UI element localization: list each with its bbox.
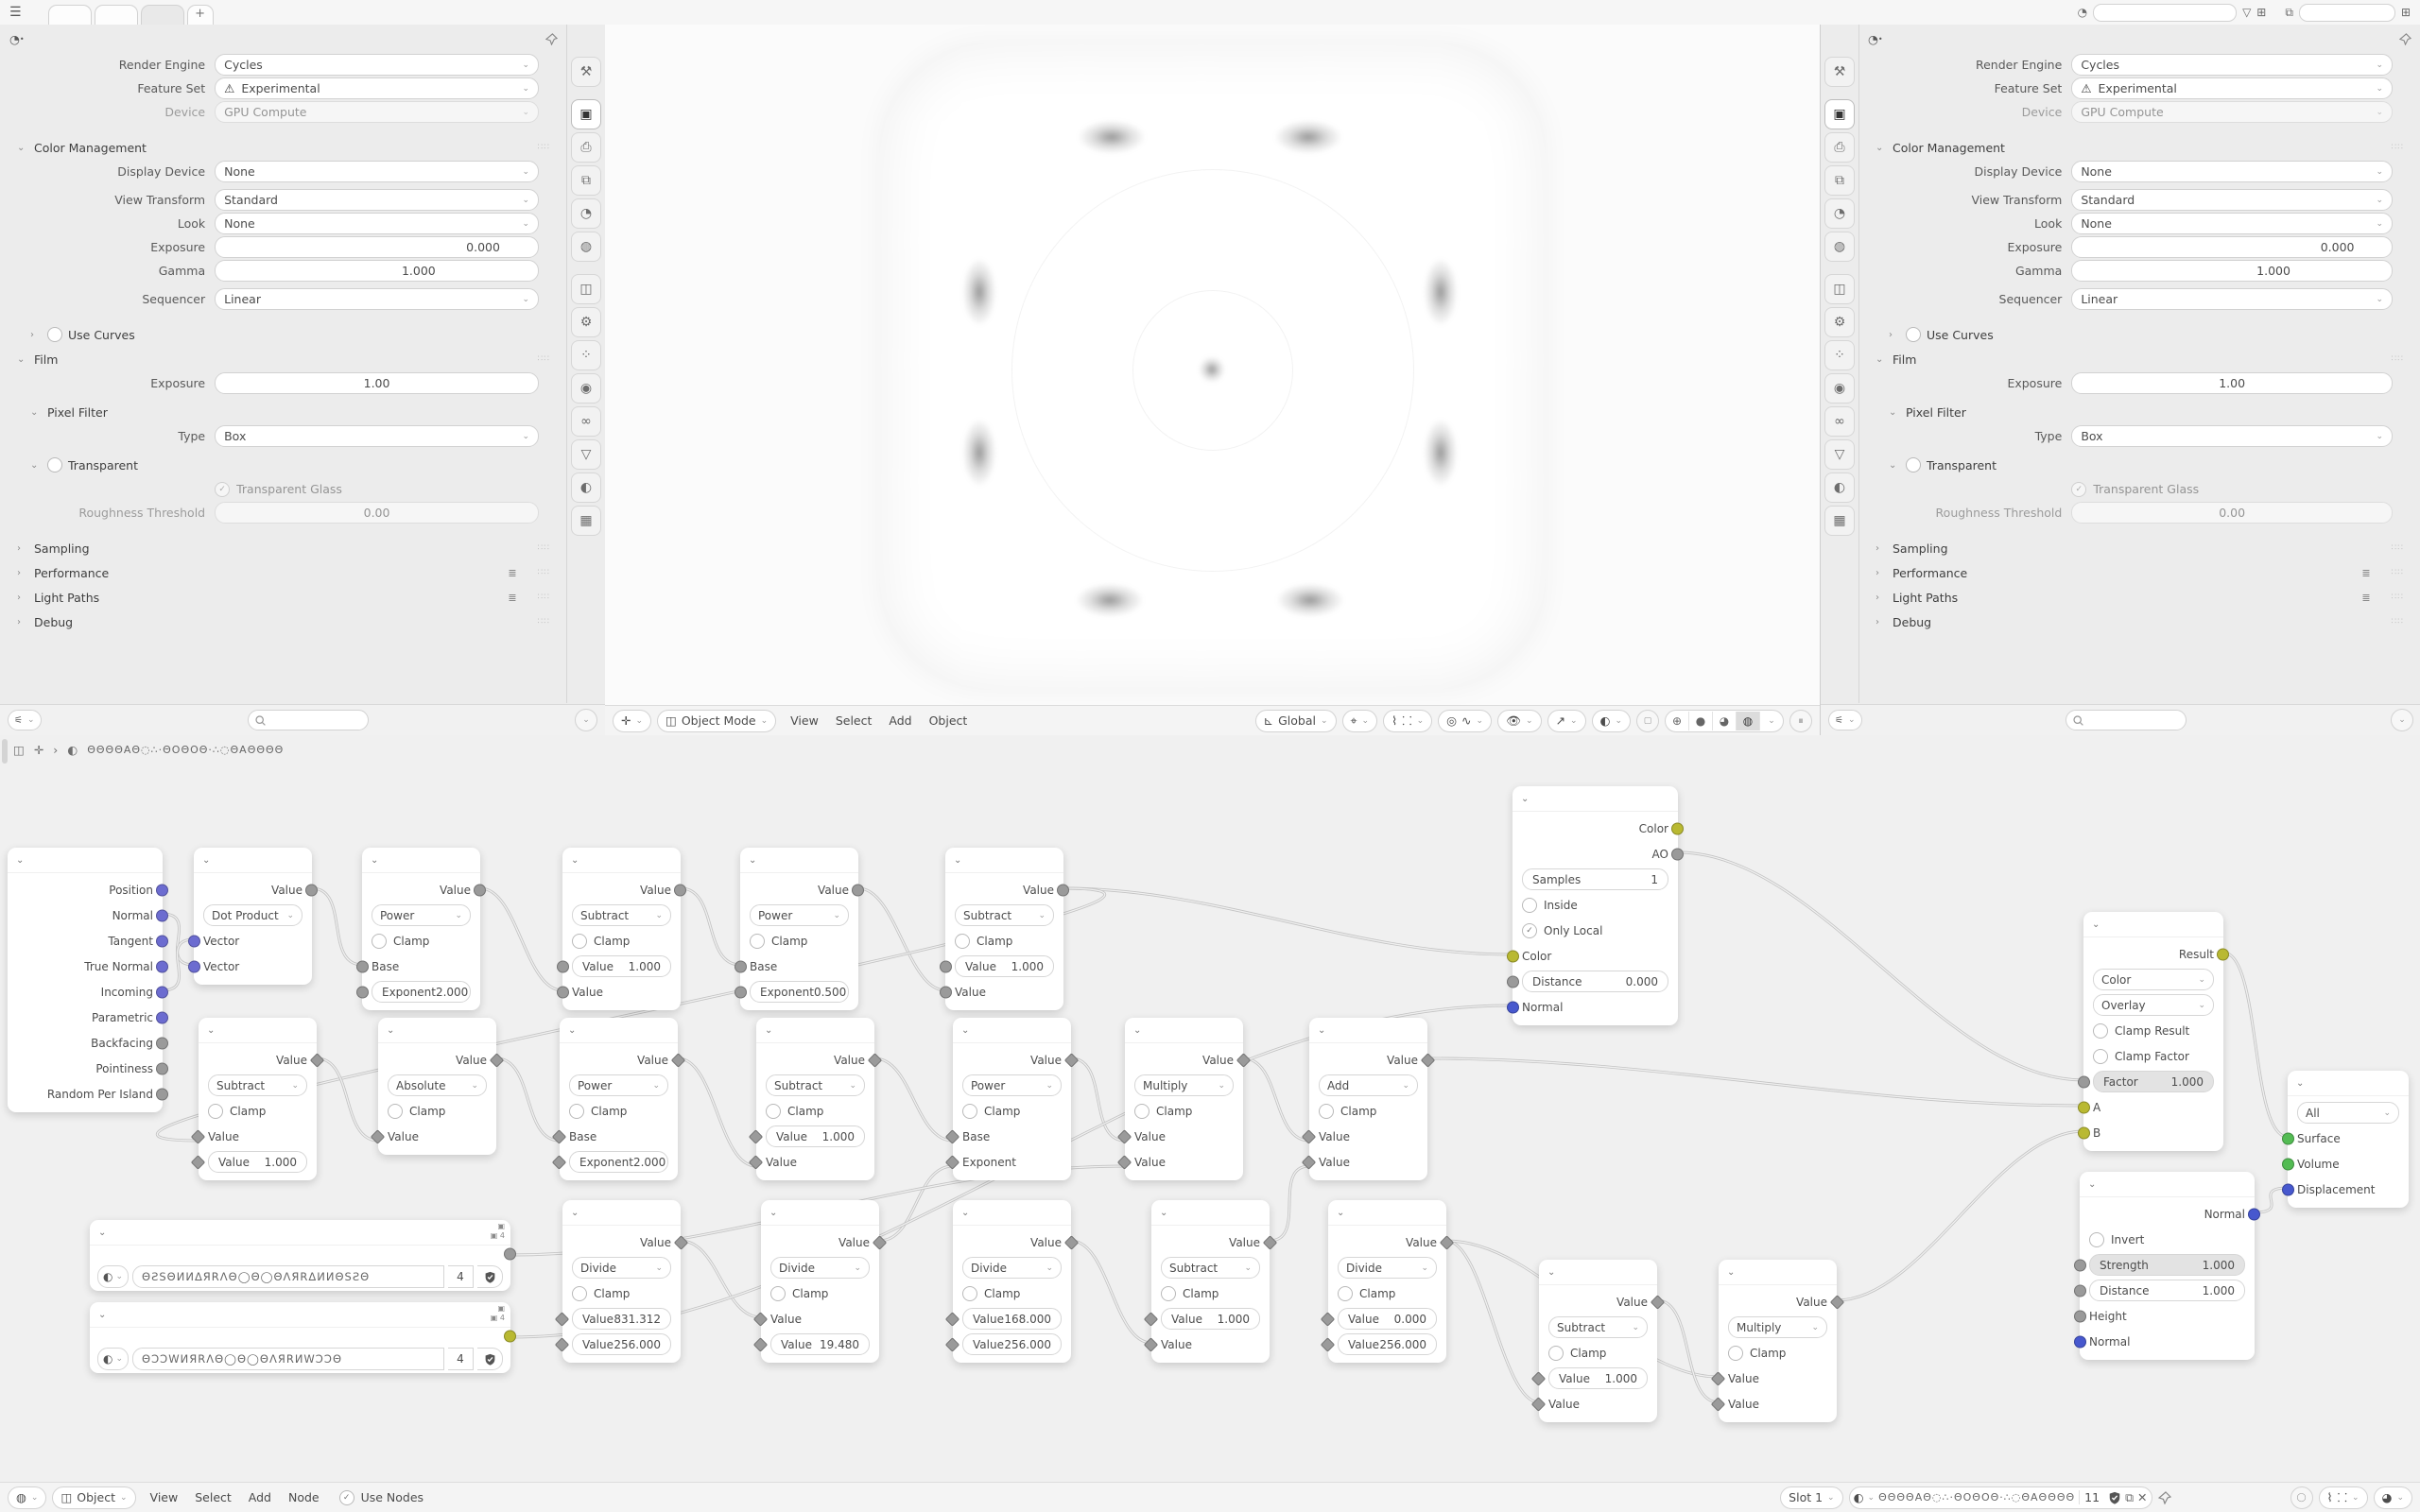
props-section-light-paths[interactable]: ›Light Paths≣∷∷ [1862, 585, 2417, 610]
collapse-arrow[interactable]: › [17, 593, 28, 603]
exposure-slider[interactable]: 0.000 [215, 236, 539, 258]
node-subtract-r3[interactable]: ⌄ValueSubtract⌄ClampValue1.000Value [1151, 1200, 1270, 1363]
node-collapse-chevron[interactable]: ⌄ [961, 1208, 969, 1218]
value-field-value[interactable]: Value1.000 [1161, 1308, 1260, 1330]
value-field-distance[interactable]: Distance1.000 [2089, 1280, 2245, 1301]
feature-set-dropdown[interactable]: ⚠Experimental⌄ [2071, 77, 2393, 99]
operation-dropdown[interactable]: Overlay⌄ [2093, 994, 2214, 1016]
node-collapse-chevron[interactable]: ⌄ [2092, 919, 2100, 930]
expand-arrow[interactable]: ⌄ [1889, 407, 1900, 418]
new-scene-icon[interactable]: ⊞ [2256, 6, 2266, 19]
node-collapse-chevron[interactable]: ⌄ [568, 1025, 576, 1036]
socket-yellow[interactable] [504, 1331, 516, 1343]
tool-tab[interactable]: ⚒ [571, 57, 601, 87]
use-nodes-checkbox[interactable]: ✓ Use Nodes [339, 1490, 423, 1505]
expand-arrow[interactable]: ⌄ [1875, 143, 1887, 153]
section-checkbox[interactable] [1906, 327, 1921, 342]
props-section-light-paths[interactable]: ›Light Paths≣∷∷ [4, 585, 563, 610]
snap-group[interactable]: ⌇⸬⌄ [1383, 710, 1432, 732]
value-field-exponent[interactable]: Exponent2.000 [372, 981, 471, 1003]
plus-icon[interactable]: ✛ [34, 743, 43, 757]
collapse-arrow[interactable]: › [1875, 543, 1887, 554]
expand-arrow[interactable]: ⌄ [1875, 354, 1887, 365]
node-collapse-chevron[interactable]: ⌄ [16, 855, 24, 866]
menu-select[interactable]: Select [827, 713, 881, 728]
display-filter-button[interactable]: ⚟⌄ [8, 710, 42, 730]
operation-dropdown[interactable]: Power⌄ [962, 1074, 1062, 1096]
expand-arrow[interactable]: ⌄ [1889, 460, 1900, 471]
node-header[interactable]: ⌄▣▣ 4 [90, 1220, 510, 1246]
props-section-performance[interactable]: ›Performance≣∷∷ [1862, 560, 2417, 585]
fake-user-shield-icon[interactable] [477, 1265, 503, 1288]
editor-type-button[interactable]: ◍⌄ [8, 1486, 46, 1509]
workspace-tab[interactable] [95, 5, 138, 25]
object-tab[interactable]: ◫ [1824, 274, 1855, 304]
drag-dots-icon[interactable]: ∷∷ [538, 543, 550, 553]
socket-gray[interactable] [940, 986, 952, 998]
socket-gray[interactable] [674, 884, 686, 896]
checkbox-clamp[interactable]: Clamp [955, 934, 1012, 949]
workspace-tab[interactable] [48, 5, 92, 25]
collapse-button[interactable]: ⌄ [575, 709, 597, 731]
props-section-film[interactable]: ⌄Film∷∷ [1862, 347, 2417, 371]
operation-dropdown[interactable]: Power⌄ [569, 1074, 668, 1096]
editor-type-button[interactable]: ✛⌄ [613, 710, 651, 732]
node-collapse-chevron[interactable]: ⌄ [571, 855, 579, 866]
node-collapse-chevron[interactable]: ⌄ [202, 855, 210, 866]
orientation-dropdown[interactable]: ⊾Global⌄ [1255, 710, 1337, 732]
section-checkbox[interactable] [1906, 457, 1921, 472]
display-device-dropdown[interactable]: None⌄ [215, 161, 539, 182]
socket-gray[interactable] [557, 960, 569, 972]
node-menu-select[interactable]: Select [186, 1490, 240, 1504]
output-tab[interactable]: ⎙ [1824, 132, 1855, 163]
socket-gray[interactable] [1057, 884, 1069, 896]
node-collapse-chevron[interactable]: ⌄ [387, 1025, 394, 1036]
transparent-glass-checkbox[interactable]: ✓Transparent Glass [215, 482, 539, 497]
menu-object[interactable]: Object [921, 713, 977, 728]
node-header[interactable]: ⌄ [2083, 912, 2223, 937]
look-dropdown[interactable]: None⌄ [2071, 213, 2393, 234]
collapse-arrow[interactable]: › [1875, 568, 1887, 578]
node-collapse-chevron[interactable]: ⌄ [207, 1025, 215, 1036]
particles-tab[interactable]: ⁘ [1824, 340, 1855, 370]
render-engine-dropdown[interactable]: Cycles⌄ [2071, 54, 2393, 76]
drag-dots-icon[interactable]: ∷∷ [2392, 568, 2404, 577]
operation-dropdown[interactable]: Multiply⌄ [1728, 1316, 1827, 1338]
image-name-field[interactable]: ΘƆƆWИЯRΛΘ◯Θ◯ΘΛЯRИWƆƆΘ [132, 1348, 444, 1370]
node-divide-1[interactable]: ⌄ValueDivide⌄ClampValue831.312Value256.0… [562, 1200, 681, 1363]
collapse-button[interactable]: ⌄ [2391, 709, 2413, 731]
section-checkbox[interactable] [47, 327, 62, 342]
socket-gray[interactable] [735, 986, 747, 998]
collapse-arrow[interactable]: › [1875, 617, 1887, 627]
copy-material-icon[interactable]: ⧉ [2125, 1490, 2134, 1505]
socket-gray[interactable] [557, 986, 569, 998]
node-subtract-r2b[interactable]: ⌄ValueSubtract⌄ClampValue1.000Value [756, 1018, 874, 1180]
node-geometry[interactable]: ⌄PositionNormalTangentTrue NormalIncomin… [8, 848, 163, 1112]
props-section-use-curves[interactable]: ›Use Curves [4, 322, 563, 347]
checkbox-clamp[interactable]: Clamp [750, 934, 807, 949]
physics-tab[interactable]: ◉ [571, 373, 601, 404]
collapse-arrow[interactable]: › [1875, 593, 1887, 603]
operation-dropdown[interactable]: Divide⌄ [1338, 1257, 1437, 1279]
overlays-dropdown[interactable]: ◐⌄ [1592, 710, 1631, 732]
socket-blue[interactable] [2248, 1208, 2260, 1220]
value-field-value[interactable]: Value168.000 [962, 1308, 1062, 1330]
sequencer-dropdown[interactable]: Linear⌄ [215, 288, 539, 310]
operation-dropdown[interactable]: Subtract⌄ [1548, 1316, 1648, 1338]
drag-dots-icon[interactable]: ∷∷ [538, 143, 550, 152]
value-field-exponent[interactable]: Exponent0.500 [750, 981, 849, 1003]
render-tab[interactable]: ▣ [571, 99, 601, 129]
drag-dots-icon[interactable]: ∷∷ [2392, 543, 2404, 553]
socket-gray[interactable] [852, 884, 864, 896]
node-header[interactable]: ⌄ [953, 1018, 1071, 1043]
node-header[interactable]: ⌄ [1328, 1200, 1446, 1226]
gamma-slider[interactable]: 1.000 [215, 260, 539, 282]
node-header[interactable]: ⌄ [2288, 1071, 2409, 1096]
node-header[interactable]: ⌄ [378, 1018, 496, 1043]
material-selector[interactable]: ◐⌄ ΘΘΘΘAΘ◌∴·ΘΟΘΟΘ·∴◌ΘAΘΘΘΘ 11 ⧉ ✕ [1849, 1486, 2152, 1509]
object-tab[interactable]: ◫ [571, 274, 601, 304]
device-dropdown[interactable]: GPU Compute⌄ [2071, 101, 2393, 123]
node-header[interactable]: ⌄ [2080, 1172, 2255, 1197]
checkbox-clamp[interactable]: Clamp [569, 1104, 627, 1119]
add-workspace-tab[interactable]: + [187, 5, 214, 25]
node-menu-add[interactable]: Add [240, 1490, 280, 1504]
socket-gray[interactable] [2074, 1259, 2086, 1271]
physics-tab[interactable]: ◉ [1824, 373, 1855, 404]
node-collapse-chevron[interactable]: ⌄ [1337, 1208, 1344, 1218]
render-tab[interactable]: ▣ [1824, 99, 1855, 129]
new-view-layer-icon[interactable]: ⊞ [2401, 6, 2411, 19]
node-collapse-chevron[interactable]: ⌄ [961, 1025, 969, 1036]
node-collapse-chevron[interactable]: ⌄ [1547, 1267, 1555, 1278]
socket-gray[interactable] [156, 1062, 168, 1074]
socket-gray[interactable] [474, 884, 486, 896]
node-collapse-chevron[interactable]: ⌄ [2296, 1078, 2304, 1089]
socket-purple[interactable] [156, 1011, 168, 1023]
operation-dropdown[interactable]: Divide⌄ [962, 1257, 1062, 1279]
checkbox-only-local[interactable]: ✓Only Local [1522, 923, 1602, 938]
socket-gray[interactable] [305, 884, 318, 896]
node-collapse-chevron[interactable]: ⌄ [2088, 1179, 2096, 1190]
socket-gray[interactable] [2078, 1075, 2090, 1088]
checkbox-clamp[interactable]: Clamp [770, 1286, 828, 1301]
value-field-value[interactable]: Value1.000 [955, 955, 1054, 977]
properties-search-input[interactable] [2066, 710, 2187, 730]
collapse-arrow[interactable]: › [30, 330, 42, 340]
exposure-field[interactable]: 1.00 [2071, 372, 2393, 394]
drag-dots-icon[interactable]: ∷∷ [2392, 617, 2404, 627]
socket-gray[interactable] [356, 960, 369, 972]
socket-green[interactable] [2282, 1158, 2294, 1170]
drag-dots-icon[interactable]: ∷∷ [2392, 143, 2404, 152]
drag-dots-icon[interactable]: ∷∷ [538, 593, 550, 602]
checkbox-clamp[interactable]: Clamp [1319, 1104, 1376, 1119]
feature-set-dropdown[interactable]: ⚠Experimental⌄ [215, 77, 539, 99]
node-header[interactable]: ⌄ [199, 1018, 317, 1043]
visibility-dropdown[interactable]: 👁⌄ [1497, 710, 1541, 732]
checkbox-invert[interactable]: Invert [2089, 1232, 2144, 1247]
props-section-pixel-filter[interactable]: ⌄Pixel Filter [1862, 400, 2417, 424]
node-menu-node[interactable]: Node [280, 1490, 328, 1504]
socket-purple[interactable] [156, 960, 168, 972]
modifiers-tab[interactable]: ⚙ [1824, 307, 1855, 337]
props-section-performance[interactable]: ›Performance≣∷∷ [4, 560, 563, 585]
value-field-value[interactable]: Value256.000 [572, 1333, 671, 1355]
operation-dropdown[interactable]: Add⌄ [1319, 1074, 1418, 1096]
value-field-value[interactable]: Value1.000 [766, 1125, 865, 1147]
operation-dropdown[interactable]: Power⌄ [372, 904, 471, 926]
node-menu-view[interactable]: View [142, 1490, 187, 1504]
transparent-glass-checkbox[interactable]: ✓Transparent Glass [2071, 482, 2393, 497]
image-user-count[interactable]: 4 [448, 1265, 474, 1288]
gizmos-dropdown[interactable]: ↗⌄ [1547, 710, 1586, 732]
viewport-3d[interactable]: ✛⌄ ◫Object Mode⌄ ViewSelectAddObject ⊾Gl… [605, 25, 1820, 735]
pivot-dropdown[interactable]: ⌖⌄ [1342, 710, 1378, 732]
data-tab[interactable]: ▽ [1824, 439, 1855, 470]
pause-render-button[interactable]: ⏸ [1789, 710, 1812, 732]
node-header[interactable]: ⌄ [1539, 1260, 1657, 1285]
checkbox-clamp[interactable]: Clamp [208, 1104, 266, 1119]
value-field-value[interactable]: Value1.000 [572, 955, 671, 977]
node-dot-product[interactable]: ⌄ValueDot Product⌄VectorVector [194, 848, 312, 985]
socket-blue[interactable] [2074, 1335, 2086, 1348]
value-field-distance[interactable]: Distance0.000 [1522, 971, 1668, 992]
view-transform-dropdown[interactable]: Standard⌄ [215, 189, 539, 211]
node-header[interactable]: ⌄ [1151, 1200, 1270, 1226]
shader-node-editor[interactable]: ◫ ✛ › ◐ ΘΘΘΘAΘ◌∴·ΘΟΘΟΘ·∴◌ΘAΘΘΘΘ ⌄Positio… [0, 735, 2420, 1482]
socket-gray[interactable] [156, 1088, 168, 1100]
value-field-value[interactable]: Value0.000 [1338, 1308, 1437, 1330]
gamma-slider[interactable]: 1.000 [2071, 260, 2393, 282]
node-subtract-low[interactable]: ⌄ValueSubtract⌄ClampValue1.000Value [1539, 1260, 1657, 1422]
checkbox-clamp-factor[interactable]: Clamp Factor [2093, 1049, 2189, 1064]
material-tab[interactable]: ◐ [1824, 472, 1855, 503]
props-section-sampling[interactable]: ›Sampling∷∷ [1862, 536, 2417, 560]
data-tab[interactable]: ▽ [571, 439, 601, 470]
node-image-2[interactable]: ⌄▣▣ 4◐⌄ΘƆƆWИЯRΛΘ◯Θ◯ΘΛЯRИWƆƆΘ4 [90, 1302, 510, 1373]
node-header[interactable]: ⌄ [562, 848, 681, 873]
socket-gray[interactable] [1671, 848, 1684, 860]
value-field-samples[interactable]: Samples1 [1522, 868, 1668, 890]
expand-arrow[interactable]: ⌄ [30, 407, 42, 418]
drag-dots-icon[interactable]: ∷∷ [538, 617, 550, 627]
checkbox-clamp[interactable]: Clamp [388, 1104, 445, 1119]
device-dropdown[interactable]: GPU Compute⌄ [215, 101, 539, 123]
operation-dropdown[interactable]: Divide⌄ [770, 1257, 870, 1279]
view-layer-tab[interactable]: ⧉ [1824, 165, 1855, 196]
operation-dropdown[interactable]: Absolute⌄ [388, 1074, 487, 1096]
node-header[interactable]: ⌄ [562, 1200, 681, 1226]
particles-tab[interactable]: ⁘ [571, 340, 601, 370]
node-collapse-chevron[interactable]: ⌄ [749, 855, 756, 866]
socket-yellow[interactable] [1507, 950, 1519, 962]
node-divide-4[interactable]: ⌄ValueDivide⌄ClampValue0.000Value256.000 [1328, 1200, 1446, 1363]
value-field-value[interactable]: Value256.000 [962, 1333, 1062, 1355]
node-ambient-occlusion[interactable]: ⌄ColorAOSamples1Inside✓Only LocalColorDi… [1512, 786, 1678, 1025]
node-multiply-r2[interactable]: ⌄ValueMultiply⌄ClampValueValue [1125, 1018, 1243, 1180]
checkbox-clamp[interactable]: Clamp [1338, 1286, 1395, 1301]
value-field-strength[interactable]: Strength1.000 [2089, 1254, 2245, 1276]
socket-gray[interactable] [2074, 1284, 2086, 1297]
scene-selector[interactable] [2093, 4, 2237, 22]
props-section-transparent[interactable]: ⌄Transparent [4, 453, 563, 477]
node-collapse-chevron[interactable]: ⌄ [1160, 1208, 1167, 1218]
checkbox-clamp[interactable]: Clamp [1161, 1286, 1219, 1301]
node-material-output[interactable]: ⌄All⌄SurfaceVolumeDisplacement [2288, 1071, 2409, 1208]
node-power-r2c[interactable]: ⌄ValuePower⌄ClampBaseExponent [953, 1018, 1071, 1180]
drag-dots-icon[interactable]: ∷∷ [538, 354, 550, 364]
tool-tab[interactable]: ⚒ [1824, 57, 1855, 87]
socket-green[interactable] [2282, 1132, 2294, 1144]
node-header[interactable]: ⌄ [1309, 1018, 1427, 1043]
node-collapse-chevron[interactable]: ⌄ [1318, 1025, 1325, 1036]
operation-dropdown[interactable]: Dot Product⌄ [203, 904, 302, 926]
world-tab[interactable]: ◍ [1824, 232, 1855, 262]
world-tab[interactable]: ◍ [571, 232, 601, 262]
scene-tab[interactable]: ◔ [1824, 198, 1855, 229]
node-header[interactable]: ⌄ [756, 1018, 874, 1043]
value-field-factor[interactable]: Factor1.000 [2093, 1071, 2214, 1092]
checkbox-clamp[interactable]: Clamp [962, 1286, 1020, 1301]
node-collapse-chevron[interactable]: ⌄ [371, 855, 378, 866]
socket-purple[interactable] [156, 884, 168, 896]
node-header[interactable]: ⌄ [8, 848, 163, 873]
node-header[interactable]: ⌄ [194, 848, 312, 873]
node-header[interactable]: ⌄▣▣ 4 [90, 1302, 510, 1328]
pin-icon[interactable] [2399, 28, 2411, 49]
checkbox-clamp[interactable]: Clamp [962, 1104, 1020, 1119]
checkbox-clamp[interactable]: Clamp [1134, 1104, 1192, 1119]
node-multiply-low[interactable]: ⌄ValueMultiply⌄ClampValueValue [1719, 1260, 1837, 1422]
checkbox-clamp[interactable]: Clamp [572, 934, 630, 949]
drag-dots-icon[interactable]: ∷∷ [538, 568, 550, 577]
checkbox-clamp-result[interactable]: Clamp Result [2093, 1023, 2189, 1039]
mode-dropdown[interactable]: ◫Object Mode⌄ [657, 710, 776, 732]
props-section-film[interactable]: ⌄Film∷∷ [4, 347, 563, 371]
material-shading-button[interactable]: ◕ [1713, 712, 1737, 730]
xray-toggle[interactable]: ▢ [1636, 710, 1659, 732]
node-collapse-chevron[interactable]: ⌄ [1521, 794, 1529, 804]
collapse-arrow[interactable]: › [17, 543, 28, 554]
node-collapse-chevron[interactable]: ⌄ [769, 1208, 777, 1218]
socket-blue[interactable] [2282, 1183, 2294, 1195]
node-collapse-chevron[interactable]: ⌄ [98, 1310, 106, 1320]
constraints-tab[interactable]: ∞ [1824, 406, 1855, 437]
socket-blue[interactable] [1507, 1001, 1519, 1013]
node-header[interactable]: ⌄ [1125, 1018, 1243, 1043]
roughness-threshold-field[interactable]: 0.00 [215, 502, 539, 524]
texture-tab[interactable]: ▦ [1824, 506, 1855, 536]
value-field-value[interactable]: Value1.000 [208, 1151, 307, 1173]
operation-dropdown[interactable]: Subtract⌄ [572, 904, 671, 926]
checkbox-clamp[interactable]: Clamp [372, 934, 429, 949]
collapse-arrow[interactable]: › [17, 617, 28, 627]
snap-settings[interactable]: ⌇⸬⌄ [2319, 1486, 2368, 1509]
node-header[interactable]: ⌄ [945, 848, 1063, 873]
presets-icon[interactable]: ≣ [2361, 567, 2370, 579]
texture-tab[interactable]: ▦ [571, 506, 601, 536]
node-subtract-2[interactable]: ⌄ValueSubtract⌄ClampValue1.000Value [945, 848, 1063, 1010]
drag-dots-icon[interactable]: ∷∷ [2392, 593, 2404, 602]
socket-yellow[interactable] [2078, 1126, 2090, 1139]
node-add-r2[interactable]: ⌄ValueAdd⌄ClampValueValue [1309, 1018, 1427, 1180]
node-bump[interactable]: ⌄NormalInvertStrength1.000Distance1.000H… [2080, 1172, 2255, 1360]
user-count[interactable]: 11 [2079, 1490, 2104, 1504]
socket-yellow[interactable] [2217, 948, 2229, 960]
checkbox-clamp[interactable]: Clamp [572, 1286, 630, 1301]
checkbox-clamp[interactable]: Clamp [1728, 1346, 1786, 1361]
operation-dropdown[interactable]: Subtract⌄ [955, 904, 1054, 926]
drag-dots-icon[interactable]: ∷∷ [2392, 354, 2404, 364]
socket-purple[interactable] [188, 960, 200, 972]
section-checkbox[interactable] [47, 457, 62, 472]
node-collapse-chevron[interactable]: ⌄ [954, 855, 961, 866]
wireframe-shading-button[interactable]: ⊕ [1666, 712, 1689, 730]
operation-dropdown[interactable]: Subtract⌄ [1161, 1257, 1260, 1279]
node-collapse-chevron[interactable]: ⌄ [98, 1228, 106, 1238]
operation-dropdown[interactable]: Power⌄ [750, 904, 849, 926]
value-field-exponent[interactable]: Exponent2.000 [569, 1151, 668, 1173]
operation-dropdown[interactable]: Multiply⌄ [1134, 1074, 1234, 1096]
menu-add[interactable]: Add [880, 713, 920, 728]
filter-icon[interactable]: ▽ [2242, 6, 2251, 19]
modifiers-tab[interactable]: ⚙ [571, 307, 601, 337]
view-layer-tab[interactable]: ⧉ [571, 165, 601, 196]
app-menu-icon[interactable]: ☰ [9, 5, 22, 20]
node-power-1[interactable]: ⌄ValuePower⌄ClampBaseExponent2.000 [362, 848, 480, 1010]
node-header[interactable]: ⌄ [761, 1200, 879, 1226]
rendered-shading-button[interactable]: ◍ [1737, 712, 1760, 730]
props-section-pixel-filter[interactable]: ⌄Pixel Filter [4, 400, 563, 424]
checkbox-clamp[interactable]: Clamp [766, 1104, 823, 1119]
socket-yellow[interactable] [1671, 822, 1684, 834]
sequencer-dropdown[interactable]: Linear⌄ [2071, 288, 2393, 310]
collapse-arrow[interactable]: › [17, 568, 28, 578]
node-absolute[interactable]: ⌄ValueAbsolute⌄ClampValue [378, 1018, 496, 1155]
operation-dropdown[interactable]: All⌄ [2297, 1102, 2399, 1124]
node-power-r2[interactable]: ⌄ValuePower⌄ClampBaseExponent2.000 [560, 1018, 678, 1180]
image-browse-dropdown[interactable]: ◐⌄ [97, 1348, 129, 1370]
presets-icon[interactable]: ≣ [508, 592, 516, 604]
pin-icon[interactable] [545, 28, 558, 49]
operation-dropdown[interactable]: Subtract⌄ [766, 1074, 865, 1096]
presets-icon[interactable]: ≣ [2361, 592, 2370, 604]
expand-arrow[interactable]: ⌄ [17, 143, 28, 153]
view-layer-selector[interactable] [2299, 4, 2395, 22]
socket-purple[interactable] [156, 986, 168, 998]
type-dropdown[interactable]: Box⌄ [2071, 425, 2393, 447]
display-filter-button[interactable]: ⚟⌄ [1828, 710, 1862, 730]
checkbox-inside[interactable]: Inside [1522, 898, 1578, 913]
exposure-field[interactable]: 1.00 [215, 372, 539, 394]
socket-gray[interactable] [504, 1248, 516, 1261]
node-divide-3[interactable]: ⌄ValueDivide⌄ClampValue168.000Value256.0… [953, 1200, 1071, 1363]
socket-gray[interactable] [2074, 1310, 2086, 1322]
operation-dropdown[interactable]: Color⌄ [2093, 969, 2214, 990]
expand-arrow[interactable]: ⌄ [30, 460, 42, 471]
node-header[interactable]: ⌄ [560, 1018, 678, 1043]
node-image-1[interactable]: ⌄▣▣ 4◐⌄ΘƧSΘИИΔЯRΛΘ◯Θ◯ΘΛЯRΔИИΘSƧΘ4 [90, 1220, 510, 1291]
props-section-debug[interactable]: ›Debug∷∷ [4, 610, 563, 634]
shader-context-dropdown[interactable]: ◫Object⌄ [52, 1486, 135, 1509]
props-section-sampling[interactable]: ›Sampling∷∷ [4, 536, 563, 560]
node-subtract-r2[interactable]: ⌄ValueSubtract⌄ClampValueValue1.000 [199, 1018, 317, 1180]
proportional-edit-dropdown[interactable]: ◎∿⌄ [1438, 710, 1492, 732]
